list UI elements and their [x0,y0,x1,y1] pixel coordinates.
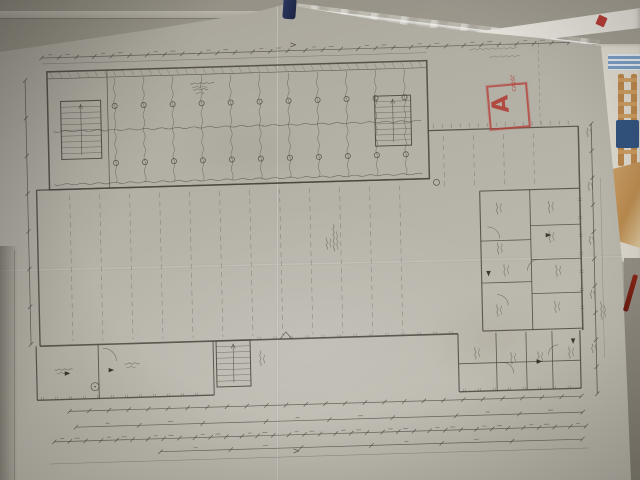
svg-text:>: > [289,40,297,50]
blueprint-paper: >> A część [0,0,640,480]
approval-stamp: A część [484,80,532,134]
brochure-blue-fabric [616,120,639,148]
paper-left-edge-line [14,250,15,480]
svg-text:>: > [292,447,300,457]
blue-pen-cap [282,0,296,19]
stamp-note: część [509,75,517,92]
brochure-header-band [608,54,640,70]
paper-left-edge-shadow [0,246,18,480]
photo-floor-plan-scene: >> A część [0,0,640,480]
stamp-letter: A [487,93,515,114]
